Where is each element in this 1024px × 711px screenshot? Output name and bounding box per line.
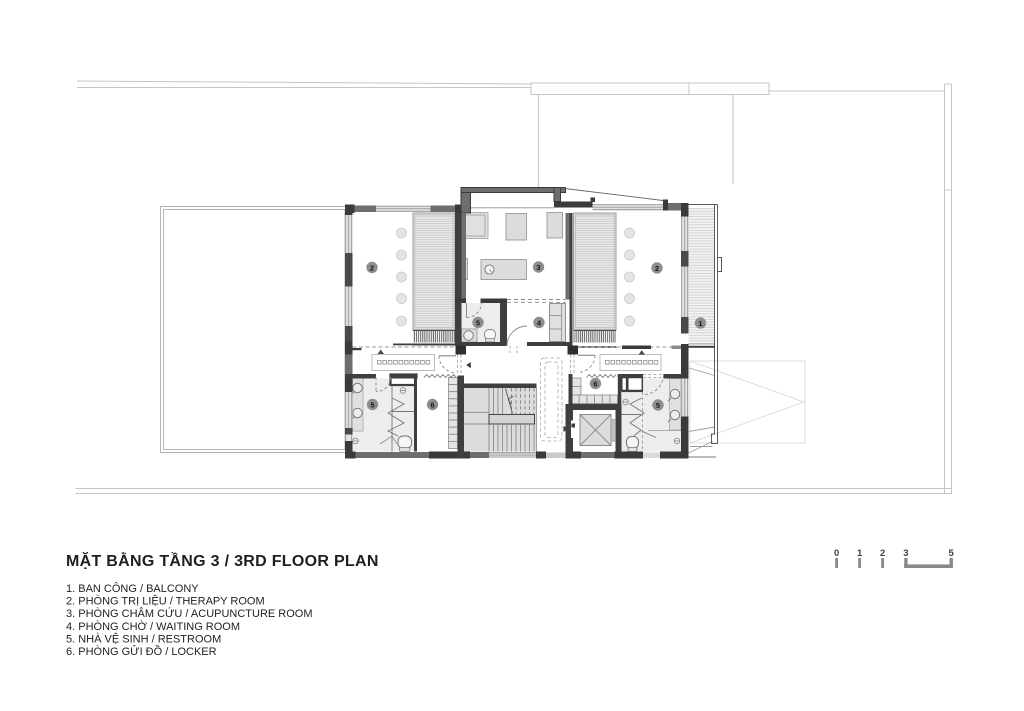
- svg-text:5: 5: [370, 401, 374, 410]
- svg-text:MẶT BẰNG TẦNG 3 / 3RD FLOOR PL: MẶT BẰNG TẦNG 3 / 3RD FLOOR PLAN: [66, 551, 379, 570]
- svg-text:6. PHÒNG GỬI ĐỒ / LOCKER: 6. PHÒNG GỬI ĐỒ / LOCKER: [66, 645, 217, 658]
- svg-text:3: 3: [536, 263, 540, 272]
- svg-text:0: 0: [834, 548, 839, 559]
- svg-text:1. BAN CÔNG / BALCONY: 1. BAN CÔNG / BALCONY: [66, 582, 199, 595]
- svg-text:2: 2: [880, 548, 885, 559]
- svg-text:2: 2: [655, 264, 659, 273]
- svg-text:6: 6: [430, 401, 434, 410]
- svg-text:2. PHÒNG TRỊ LIỆU / THERAPY RO: 2. PHÒNG TRỊ LIỆU / THERAPY ROOM: [66, 595, 265, 608]
- svg-text:5: 5: [949, 548, 955, 559]
- svg-text:5. NHÀ VỆ SINH / RESTROOM: 5. NHÀ VỆ SINH / RESTROOM: [66, 632, 221, 645]
- svg-text:5: 5: [476, 319, 480, 328]
- svg-text:4. PHÒNG CHỜ / WAITING ROOM: 4. PHÒNG CHỜ / WAITING ROOM: [66, 620, 240, 633]
- svg-text:6: 6: [593, 380, 597, 389]
- svg-text:5: 5: [656, 401, 660, 410]
- svg-text:3: 3: [903, 548, 908, 559]
- svg-text:3. PHÒNG CHÂM CỨU / ACUPUNCTUR: 3. PHÒNG CHÂM CỨU / ACUPUNCTURE ROOM: [66, 607, 313, 620]
- svg-text:2: 2: [370, 264, 374, 273]
- svg-text:1: 1: [698, 319, 702, 328]
- svg-text:1: 1: [857, 548, 863, 559]
